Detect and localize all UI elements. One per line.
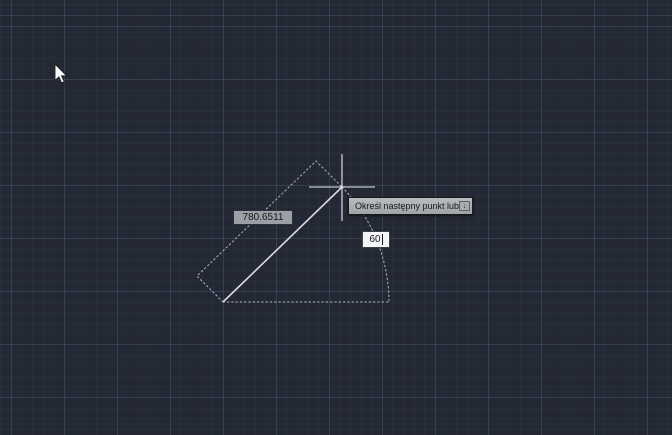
dynamic-input-tooltip: Określ następny punkt lub ↓ [348,197,473,215]
rubber-band-line [223,187,342,302]
text-caret [382,234,383,245]
tooltip-label: Określ następny punkt lub [355,201,459,211]
down-arrow-key-icon: ↓ [459,201,470,211]
length-value: 780.6511 [243,212,284,223]
drawing-overlay [0,0,672,435]
model-space-canvas[interactable]: Określ następny punkt lub ↓ 780.6511 60 [0,0,672,435]
angle-input-field[interactable]: 60 [362,231,390,248]
dimension-extension-lines [197,161,342,302]
length-input-field[interactable]: 780.6511 [233,210,293,225]
angle-value: 60 [369,234,380,245]
arrow-pointer-icon [55,64,67,83]
